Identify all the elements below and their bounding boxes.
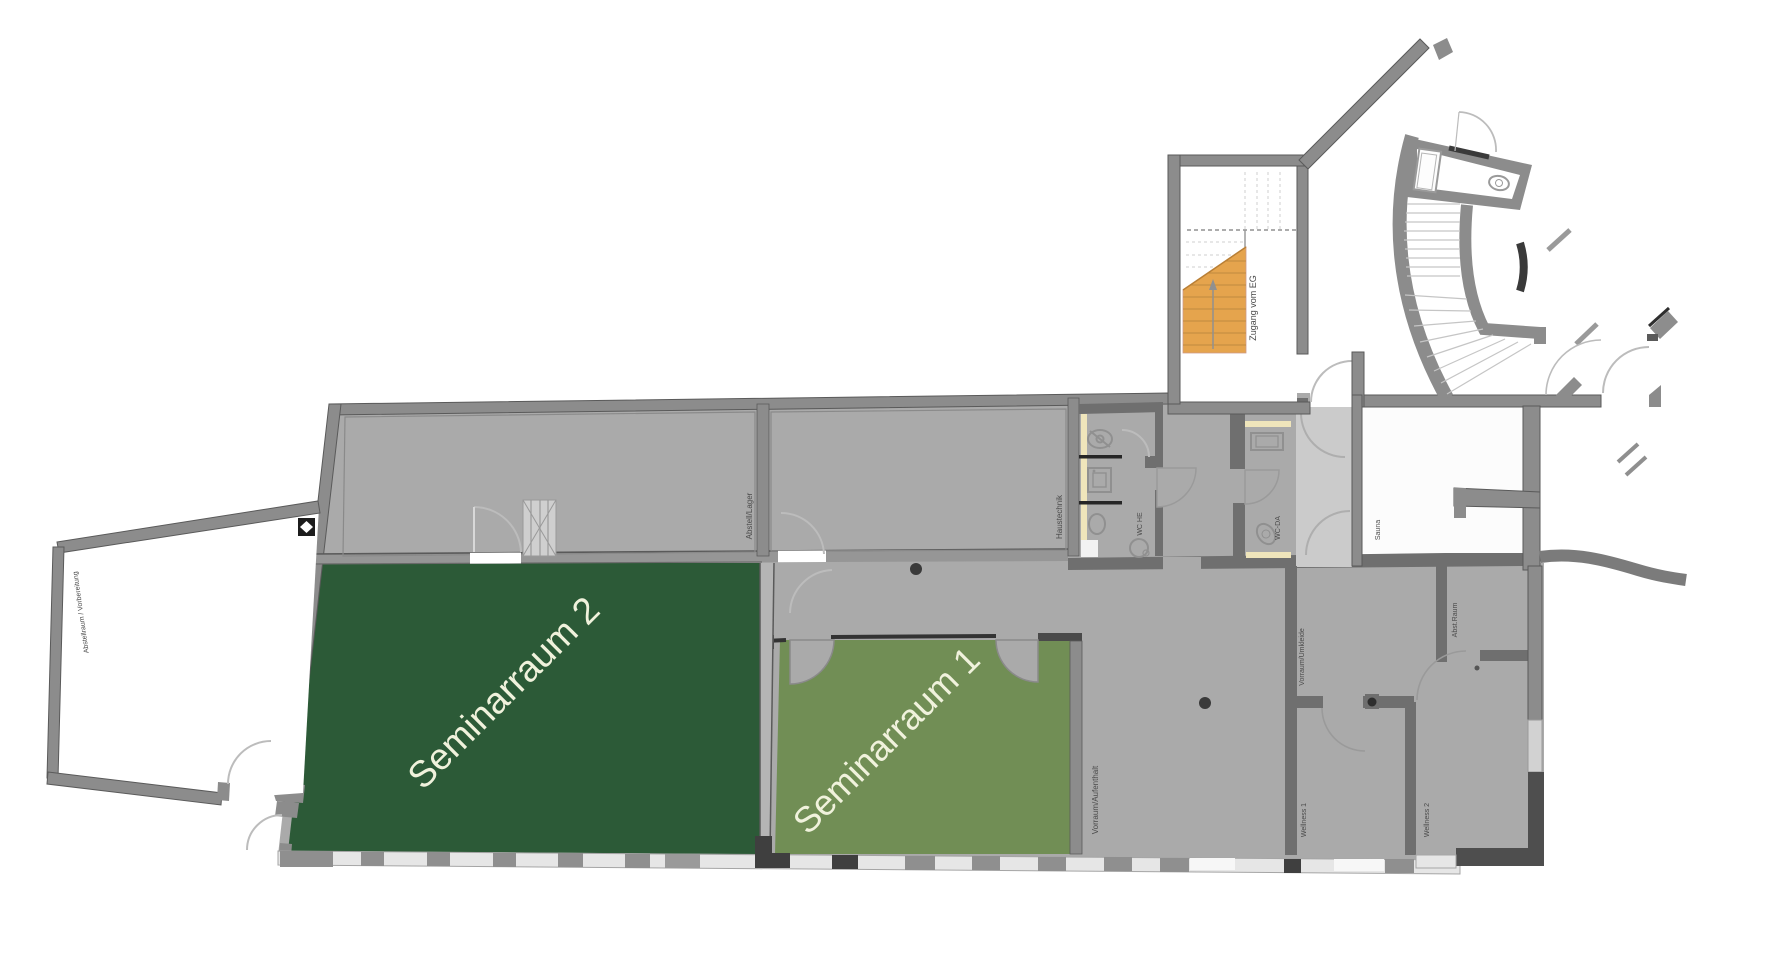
svg-text:WC-DA: WC-DA bbox=[1275, 516, 1282, 540]
svg-text:Zugang vom EG: Zugang vom EG bbox=[1248, 275, 1258, 341]
svg-text:Wellness 2: Wellness 2 bbox=[1424, 803, 1431, 837]
svg-text:Vorraum/Aufenthalt: Vorraum/Aufenthalt bbox=[1091, 765, 1100, 834]
svg-text:Wellness 1: Wellness 1 bbox=[1301, 803, 1308, 837]
svg-text:Sauna: Sauna bbox=[1375, 520, 1382, 540]
svg-text:Vorraum/Umkleide: Vorraum/Umkleide bbox=[1299, 628, 1306, 686]
svg-text:Abst.Raum: Abst.Raum bbox=[1452, 603, 1459, 638]
svg-text:WC HE: WC HE bbox=[1137, 512, 1144, 536]
svg-text:Abstell/Lager: Abstell/Lager bbox=[745, 492, 754, 539]
svg-text:Haustechnik: Haustechnik bbox=[1055, 494, 1064, 539]
